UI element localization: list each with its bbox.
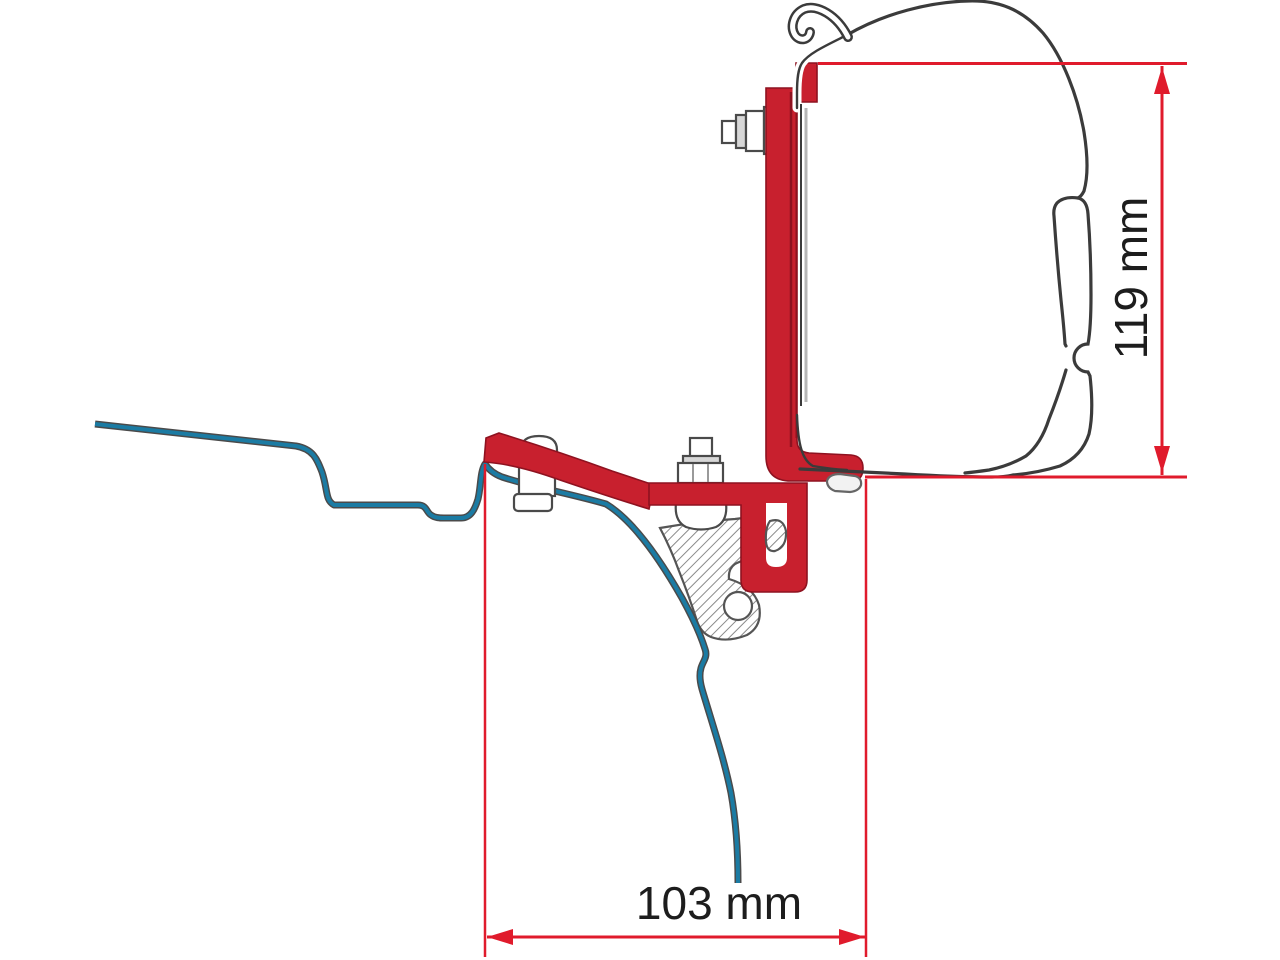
front-lead-bar	[965, 198, 1092, 475]
top-rail-bolt	[722, 107, 772, 154]
dimension-vertical-119mm: 119 mm	[818, 64, 1187, 478]
dimension-label-horizontal: 103 mm	[636, 877, 802, 929]
diagram-canvas: 119 mm 103 mm	[0, 0, 1280, 960]
awning-case	[793, 1, 1092, 477]
bolt-head-dome	[676, 503, 727, 530]
rail-channel-notch	[724, 592, 752, 620]
dimension-label-vertical: 119 mm	[1105, 197, 1157, 360]
awning-locator-foot	[827, 474, 861, 492]
bracket-vertical-arm	[766, 63, 863, 481]
technical-diagram: 119 mm 103 mm	[0, 0, 1280, 960]
rail-lip-in-slot	[766, 520, 786, 551]
